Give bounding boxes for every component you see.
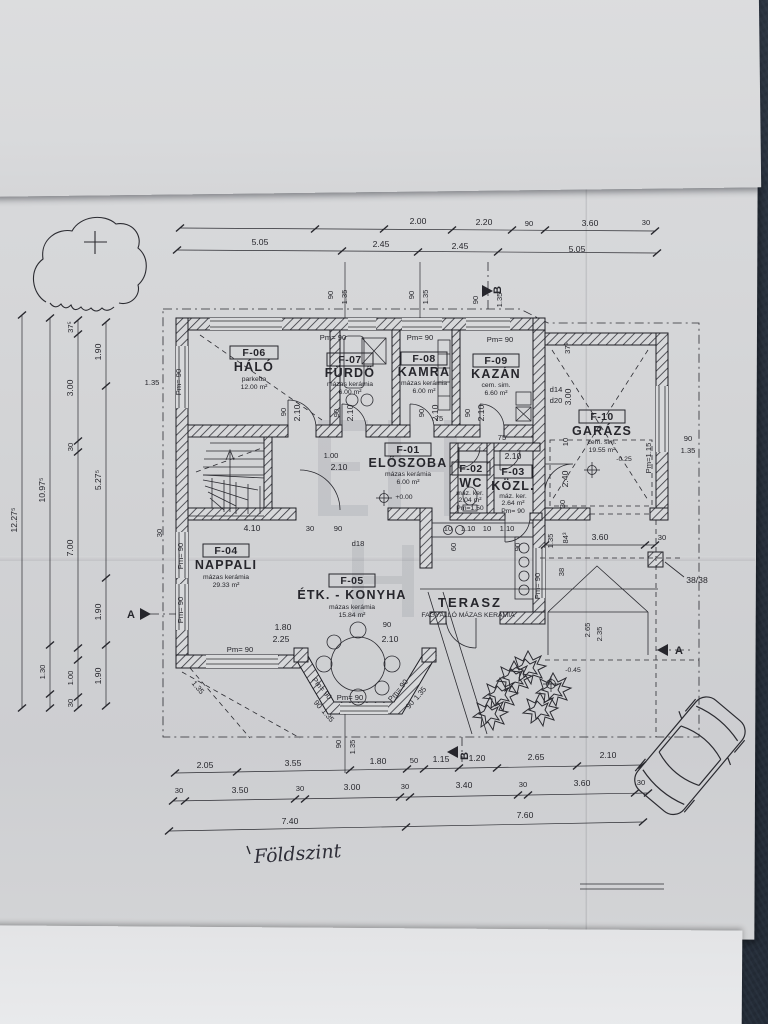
section-letter: B (492, 286, 504, 294)
pm-label: Pm= 90 (337, 693, 363, 702)
room-finish: mázas kerámia (327, 381, 373, 388)
dim-label: 90 (407, 291, 416, 299)
dim-label: 10 (483, 524, 491, 533)
note-text: Földszint (252, 840, 342, 868)
dim-label: 3.55 (285, 758, 302, 768)
dim-label: 60 (449, 543, 458, 551)
terrace-name: TERASZ (438, 595, 502, 610)
pm-label: Pm= 90 (174, 369, 183, 395)
dim-label: 38/38 (686, 575, 708, 585)
room-area: 12.00 m² (241, 384, 269, 391)
dim-label: 3.00 (65, 379, 75, 396)
dimension-lines-left (18, 312, 110, 712)
dim-label: 30 (66, 443, 75, 451)
dim-label: 90 (326, 291, 335, 299)
dim-label: 2.10 (382, 634, 399, 644)
dim-label: 30 (519, 780, 527, 789)
dim-label: 10 (561, 438, 570, 446)
dim-label: 1.90 (93, 667, 103, 684)
room-finish: parketta (242, 376, 267, 383)
dim-label: 90 (417, 409, 426, 417)
room-id: F-01 (396, 444, 419, 456)
dim-label: 50 (410, 756, 418, 765)
room-name: KAZÁN (471, 366, 521, 381)
room-finish: cem. sim. (587, 439, 616, 446)
dim-label: 30 (637, 778, 645, 787)
dim-label: 2.65 (583, 623, 592, 638)
dim-label: 7.00 (65, 539, 75, 556)
photo-background: 2.00 2.20 90 3.60 30 5.05 2.45 2.45 5.05… (0, 0, 768, 1024)
room-id: F-09 (484, 355, 507, 367)
room-id: F-03 (501, 466, 524, 478)
room-area: 2.04 m² (458, 497, 482, 504)
dim-label: 90 (334, 740, 343, 748)
dim-label: 1.35 (190, 679, 206, 696)
dim-label: 1.80 (275, 622, 292, 632)
dim-label: 3.40 (456, 780, 473, 790)
dim-label: 3.00 (563, 388, 573, 405)
dim-label: 2.20 (476, 217, 493, 227)
room-name: GARÁZS (572, 423, 632, 438)
room-label-f03: F-03 KÖZL. máz. ker. 2.64 m² Pm= 90 (491, 465, 535, 515)
dim-label: 7.60 (517, 810, 534, 820)
dim-label: d20 (550, 396, 563, 405)
floor-plan-drawing: 2.00 2.20 90 3.60 30 5.05 2.45 2.45 5.05… (0, 0, 768, 1024)
dim-label: 30 (155, 529, 164, 537)
dim-label: 2.35 (595, 627, 604, 642)
dim-label: Pm=1.15 (644, 443, 653, 474)
dim-label: 1.10 (461, 524, 476, 533)
car-sketch (624, 687, 757, 825)
dim-label: 1.35 (546, 534, 555, 549)
dim-label: 1.00 (66, 671, 75, 686)
dim-label: 1.90 (93, 343, 103, 360)
dim-label: 30 (642, 218, 650, 227)
room-id: F-02 (459, 463, 482, 475)
dim-label: 30 (306, 524, 314, 533)
dimension-labels-left: 12.27⁵ 10.97⁵ 1.30 37⁵ 3.00 30 7.00 1.00… (9, 321, 103, 707)
dim-label: 3.50 (232, 785, 249, 795)
handwritten-note: Földszint (247, 840, 342, 868)
room-id: F-04 (214, 545, 237, 557)
dim-label: 30 (296, 784, 304, 793)
tree-sketch (33, 217, 146, 311)
dim-label: 2.10 (292, 404, 302, 421)
dim-label: 3.60 (574, 778, 591, 788)
room-id: F-10 (590, 411, 613, 423)
dim-label: 10 (444, 524, 452, 533)
dim-label: 37⁵ (66, 321, 75, 333)
parapet-value: Pm= 90 (501, 508, 525, 515)
dim-label: 1.20 (469, 753, 486, 763)
room-id: F-06 (242, 347, 265, 359)
room-label-f08: F-08 KAMRA mázas kerámia 6.00 m² (398, 352, 451, 395)
room-name: KÖZL. (491, 478, 535, 493)
room-name: KAMRA (398, 365, 451, 379)
terrace-finish: FAGYÁLLÓ MÁZAS KERÁMIA (421, 610, 515, 619)
dim-label: 30 (66, 699, 75, 707)
dim-label: 2.10 (600, 750, 617, 760)
dim-label: 2.65 (528, 752, 545, 762)
room-name: HÁLÓ (234, 359, 274, 374)
dim-label: 2.10 (331, 462, 348, 472)
room-id: F-08 (412, 353, 435, 365)
dim-label: 75 (498, 433, 506, 442)
dim-label: 30 (401, 782, 409, 791)
room-area: 6.00 m² (396, 479, 420, 486)
dim-label: 5.05 (569, 244, 586, 254)
dim-label: 30 (175, 786, 183, 795)
dim-label: 1.30 (38, 665, 47, 680)
room-finish: máz. ker. (499, 493, 527, 500)
room-finish: cem. sim. (481, 382, 510, 389)
pm-label: Pm= 90 (487, 335, 513, 344)
dim-label: 2.10 (476, 404, 486, 421)
dim-label: 1.15 (433, 754, 450, 764)
dim-label: 2.10 (345, 404, 355, 421)
room-area: 19.55 m² (589, 447, 617, 454)
room-area: 2.64 m² (501, 500, 525, 507)
room-label-f04: F-04 NAPPALI mázas kerámia 29.33 m² (195, 544, 257, 589)
dim-label: 1.90 (93, 603, 103, 620)
room-finish: máz. ker. (456, 490, 484, 497)
room-label-f06: F-06 HÁLÓ parketta 12.00 m² (230, 346, 278, 391)
dim-label: 7.40 (282, 816, 299, 826)
pm-label: Pm= 90 (176, 597, 185, 623)
dimension-lines-top (173, 225, 661, 319)
dimension-lines-bottom (165, 712, 652, 835)
dim-label: 12.27⁵ (9, 507, 19, 533)
level-value: +0.00 (395, 494, 412, 501)
dim-label: 1.80 (370, 756, 387, 766)
dim-label: 75 (435, 414, 443, 423)
room-name: NAPPALI (195, 558, 257, 572)
dim-label: 90 (383, 620, 391, 629)
dim-label: 90 (334, 524, 342, 533)
room-area: 29.33 m² (213, 582, 241, 589)
room-finish: mázas kerámia (329, 604, 375, 611)
dim-label: 1.35 (421, 290, 430, 305)
dim-label: 1.35 (681, 446, 696, 455)
dim-label: 1.35 (145, 378, 160, 387)
dim-label: 30 (658, 533, 666, 542)
dim-label: 90 (525, 219, 533, 228)
dim-label: 84³ (561, 532, 570, 543)
dim-label: 3.60 (582, 218, 599, 228)
parapet-value: Pm=1.50 (456, 505, 484, 512)
room-name: ELŐSZOBA (368, 455, 447, 470)
room-area: 6.60 m² (484, 390, 508, 397)
pm-label: Pm= 90 (320, 333, 346, 342)
level-value: -0.25 (616, 456, 632, 463)
dim-label: 5.05 (252, 237, 269, 247)
room-id: F-05 (340, 575, 363, 587)
dim-label: d14 (550, 385, 563, 394)
dim-label: 10.97⁵ (37, 477, 47, 503)
dim-label: d18 (352, 539, 365, 548)
section-letter: B (459, 752, 471, 760)
room-finish: mázas kerámia (385, 471, 431, 478)
room-name: FÜRDŐ (325, 365, 375, 380)
dim-label: 90 (471, 296, 480, 304)
room-label-f10: F-10 GARÁZS cem. sim. 19.55 m² -0.25 (572, 410, 632, 463)
room-finish: mázas kerámia (203, 574, 249, 581)
dim-label: 38 (557, 568, 566, 576)
dim-label: 3.60 (592, 532, 609, 542)
room-id: F-07 (338, 354, 361, 366)
dim-label: 37⁵ (563, 342, 572, 354)
dim-label: 5.27⁵ (93, 469, 103, 490)
dim-label: 2.00 (410, 216, 427, 226)
pm-label: Pm= 90 (176, 543, 185, 569)
dim-label: 30 (558, 500, 567, 508)
room-name: ÉTK. - KONYHA (297, 587, 406, 602)
dim-label: 1.10 (500, 524, 515, 533)
room-area: 15.84 m² (339, 612, 367, 619)
room-finish: mázas kerámia (401, 380, 447, 387)
room-name: WC (459, 476, 482, 490)
pm-label: Pm= 90 (533, 573, 542, 599)
dim-label: 90 (279, 408, 288, 416)
dim-label: 90 (684, 434, 692, 443)
dim-label: 1.35 (340, 290, 349, 305)
dim-label: 1.35 (348, 740, 357, 755)
terrace-trees (473, 651, 571, 730)
dim-label: 2.10 (505, 451, 522, 461)
dim-label: 90 (463, 409, 472, 417)
dim-label: 2.05 (197, 760, 214, 770)
room-area: 6.00 m² (412, 388, 436, 395)
dimension-labels-bottom: 2.05 3.55 1.80 50 1.15 1.20 2.65 2.10 30… (175, 740, 645, 826)
dim-label: 2.45 (373, 239, 390, 249)
pm-label: Pm= 90 (407, 333, 433, 342)
room-area: 6.00 m² (338, 389, 362, 396)
room-label-f09: F-09 KAZÁN cem. sim. 6.60 m² (471, 354, 521, 397)
dim-label: 3.00 (344, 782, 361, 792)
level-value: -0.45 (565, 667, 581, 674)
dim-label: 90 (332, 409, 341, 417)
dim-label: 4.10 (244, 523, 261, 533)
dim-label: 2.40 (560, 470, 570, 487)
dim-label: 2.45 (452, 241, 469, 251)
section-letter: A (127, 609, 135, 621)
dim-label: 1.00 (324, 451, 339, 460)
terrace-label: TERASZ FAGYÁLLÓ MÁZAS KERÁMIA -0.45 (421, 595, 581, 674)
section-letter: A (675, 645, 683, 657)
dim-label: 90 (513, 543, 522, 551)
pm-label: Pm= 90 (227, 645, 253, 654)
stairs (188, 437, 264, 516)
dim-label: 2.25 (273, 634, 290, 644)
